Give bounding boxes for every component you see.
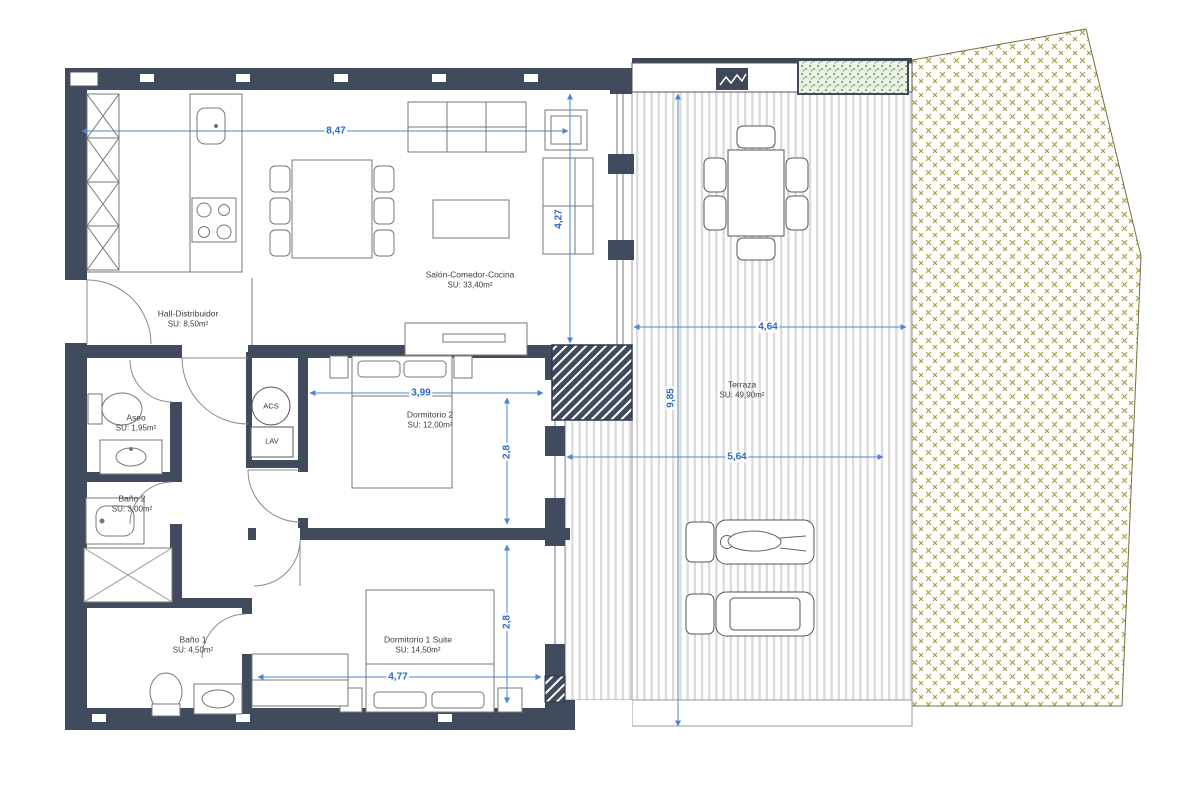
- sun-lounger-empty: [686, 592, 814, 636]
- tv-unit: [405, 323, 527, 355]
- room-name: Baño 2: [112, 493, 152, 504]
- dim-terrace-upper-width: 4,64: [756, 322, 779, 333]
- room-name: Dormitorio 2: [407, 409, 453, 420]
- room-label-bano1: Baño 1 SU: 4,50m²: [173, 634, 213, 655]
- planter: [798, 60, 908, 94]
- room-label-salon: Salón-Comedor-Cocina SU: 33,40m²: [426, 269, 515, 290]
- room-area: SU: 12,00m²: [407, 420, 453, 430]
- dim-dorm1-depth: 2,8: [502, 613, 513, 631]
- room-label-dorm2: Dormitorio 2 SU: 12,00m²: [407, 409, 453, 430]
- cooktop: [192, 198, 236, 242]
- room-label-dorm1: Dormitorio 1 Suite SU: 14,50m²: [384, 634, 452, 655]
- coffee-table: [433, 200, 509, 238]
- room-name: Aseo: [116, 412, 156, 423]
- room-name: Baño 1: [173, 634, 213, 645]
- lav-label: LAV: [265, 437, 279, 446]
- sun-lounger-occupied: [686, 520, 814, 564]
- room-area: SU: 1,95m²: [116, 423, 156, 433]
- room-area: SU: 33,40m²: [426, 280, 515, 290]
- room-label-bano2: Baño 2 SU: 3,00m²: [112, 493, 152, 514]
- floor-plan: Salón-Comedor-Cocina SU: 33,40m² Hall-Di…: [0, 0, 1200, 800]
- ac-unit: [716, 68, 748, 90]
- terrace-top-strip: [632, 58, 912, 94]
- room-name: Salón-Comedor-Cocina: [426, 269, 515, 280]
- dim-living-width: 8,47: [324, 126, 347, 137]
- dim-dorm2-width: 3,99: [409, 388, 432, 399]
- dim-dorm1-width: 4,77: [386, 672, 409, 683]
- room-name: Terraza: [720, 379, 765, 390]
- acs-label: ACS: [263, 402, 278, 411]
- room-area: SU: 49,90m²: [720, 390, 765, 400]
- dining-table: [270, 160, 394, 258]
- room-label-aseo: Aseo SU: 1,95m²: [116, 412, 156, 433]
- room-area: SU: 3,00m²: [112, 504, 152, 514]
- garden-area: [912, 29, 1141, 706]
- dim-terrace-depth: 9,85: [666, 386, 677, 409]
- floor-plan-drawing: [0, 0, 1200, 800]
- dim-terrace-lower-width: 5,64: [725, 452, 748, 463]
- room-name: Dormitorio 1 Suite: [384, 634, 452, 645]
- tall-cabinets: [87, 94, 119, 270]
- room-area: SU: 14,50m²: [384, 645, 452, 655]
- room-area: SU: 4,50m²: [173, 645, 213, 655]
- dim-living-depth: 4,27: [554, 207, 565, 230]
- dim-dorm2-depth: 2,8: [502, 443, 513, 461]
- room-label-terraza: Terraza SU: 49,90m²: [720, 379, 765, 400]
- room-name: Hall-Distribuidor: [158, 308, 218, 319]
- room-label-hall: Hall-Distribuidor SU: 8,50m²: [158, 308, 218, 329]
- room-area: SU: 8,50m²: [158, 319, 218, 329]
